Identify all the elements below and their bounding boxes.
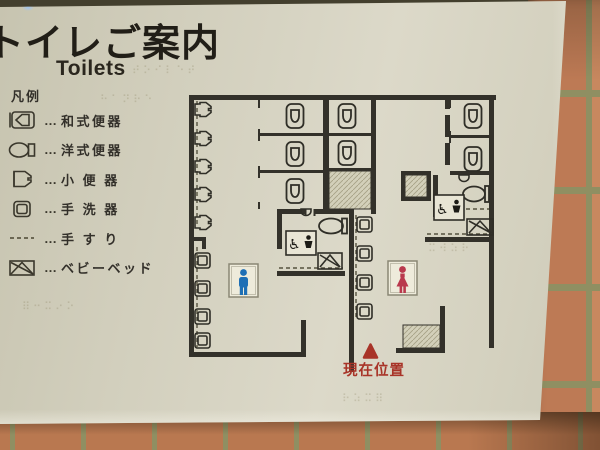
braille-dots: ⠓⠁⠝⠗⠑ xyxy=(100,93,155,106)
corner-basin-icon xyxy=(459,175,469,182)
wall xyxy=(396,348,445,353)
wall xyxy=(301,320,306,354)
toilet-guide-sign: トイレご案内 Toilets 凡例 … 和式便器 … 洋式便器 xyxy=(0,0,600,450)
mens-wash-basins xyxy=(195,253,210,348)
wall xyxy=(315,209,354,214)
toilet-icon xyxy=(287,179,304,203)
wall xyxy=(277,271,345,276)
shaft-mens xyxy=(329,171,371,209)
legend-item-handrail: … 手 す り xyxy=(6,228,176,248)
accessible-sign-mens: ♿ xyxy=(286,231,316,255)
wheelchair-icon: ♿ xyxy=(436,201,449,217)
wall xyxy=(371,95,376,214)
wall xyxy=(202,241,206,249)
legend-item-baby-bed: … ベビーベッド xyxy=(6,258,176,278)
legend-item-wash-basin: … 手 洗 器 xyxy=(6,199,176,219)
wall xyxy=(189,352,306,357)
wall xyxy=(349,209,354,372)
sign-title-english: Toilets xyxy=(56,57,126,81)
accessible-sign-womens: ♿ xyxy=(434,195,464,220)
legend-item-squat-toilet: … 和式便器 xyxy=(6,110,176,130)
shaft-womens xyxy=(405,175,427,197)
toilet-icon xyxy=(339,141,356,165)
wall xyxy=(401,197,431,201)
western-toilet-icon xyxy=(6,140,38,160)
legend-leader: … xyxy=(44,113,57,128)
toilet-icon xyxy=(287,104,304,128)
current-location-marker xyxy=(364,345,377,358)
mens-room-symbol xyxy=(229,264,258,297)
stall-toilets xyxy=(287,104,482,203)
womens-room-symbol xyxy=(388,261,417,295)
legend-heading: 凡例 xyxy=(11,86,41,105)
baby-bed-icon xyxy=(6,258,38,278)
legend: … 和式便器 … 洋式便器 … 小 便 器 … 手 洗 器 xyxy=(6,110,176,278)
wall xyxy=(277,209,282,249)
western-toilet-icon xyxy=(319,219,347,234)
toilet-icon xyxy=(339,104,356,128)
wall xyxy=(194,237,206,241)
legend-item-urinal: … 小 便 器 xyxy=(6,169,176,189)
wall xyxy=(401,171,405,201)
legend-item-western-toilet: … 洋式便器 xyxy=(6,140,176,160)
wash-basin-icon xyxy=(6,199,38,219)
wall xyxy=(401,171,431,175)
handrail-icon xyxy=(6,228,38,248)
entrance-mat xyxy=(403,325,440,348)
western-toilet-icon xyxy=(463,186,489,202)
toilet-icon xyxy=(465,104,482,128)
floor-plan: ♿ ♿ xyxy=(183,85,514,385)
baby-bed-icon xyxy=(318,253,342,269)
wall xyxy=(440,306,445,353)
braille-dots: ⠗⠵⠭⠿ xyxy=(342,392,386,405)
wheelchair-icon: ♿ xyxy=(288,236,301,252)
wall xyxy=(445,143,450,165)
wall xyxy=(189,95,194,357)
wall xyxy=(323,95,329,209)
wall xyxy=(425,237,494,242)
toilet-icon xyxy=(465,147,482,171)
squat-toilet-icon xyxy=(6,110,38,130)
glare-highlight xyxy=(22,4,34,11)
braille-dots: ⠿⠒⠭⠔⠕ xyxy=(22,300,77,313)
toilet-icon xyxy=(287,142,304,166)
urinal-icon xyxy=(6,169,38,189)
wall xyxy=(427,171,431,201)
womens-wash-basins xyxy=(357,217,372,319)
current-location-label: 現在位置 xyxy=(343,361,405,379)
